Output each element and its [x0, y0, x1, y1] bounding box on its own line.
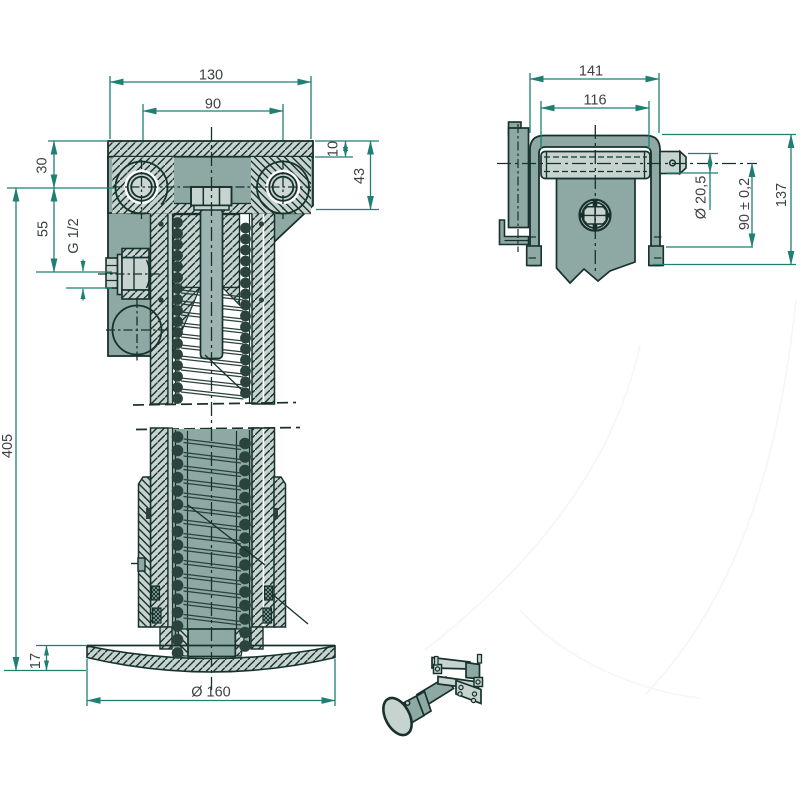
svg-text:Ø 160: Ø 160 — [191, 685, 231, 701]
svg-text:405: 405 — [0, 434, 16, 458]
svg-text:116: 116 — [583, 93, 606, 109]
svg-text:137: 137 — [774, 183, 790, 207]
svg-text:55: 55 — [36, 221, 52, 237]
svg-text:G 1/2: G 1/2 — [66, 218, 82, 253]
svg-text:90 ± 0,2: 90 ± 0,2 — [737, 178, 753, 230]
svg-text:141: 141 — [579, 64, 603, 80]
svg-text:130: 130 — [199, 68, 223, 84]
svg-text:90: 90 — [205, 97, 221, 113]
svg-text:10: 10 — [326, 141, 342, 157]
svg-text:30: 30 — [35, 157, 51, 173]
svg-text:17: 17 — [28, 653, 44, 669]
svg-text:43: 43 — [352, 168, 368, 184]
svg-text:Ø 20,5: Ø 20,5 — [694, 176, 710, 220]
